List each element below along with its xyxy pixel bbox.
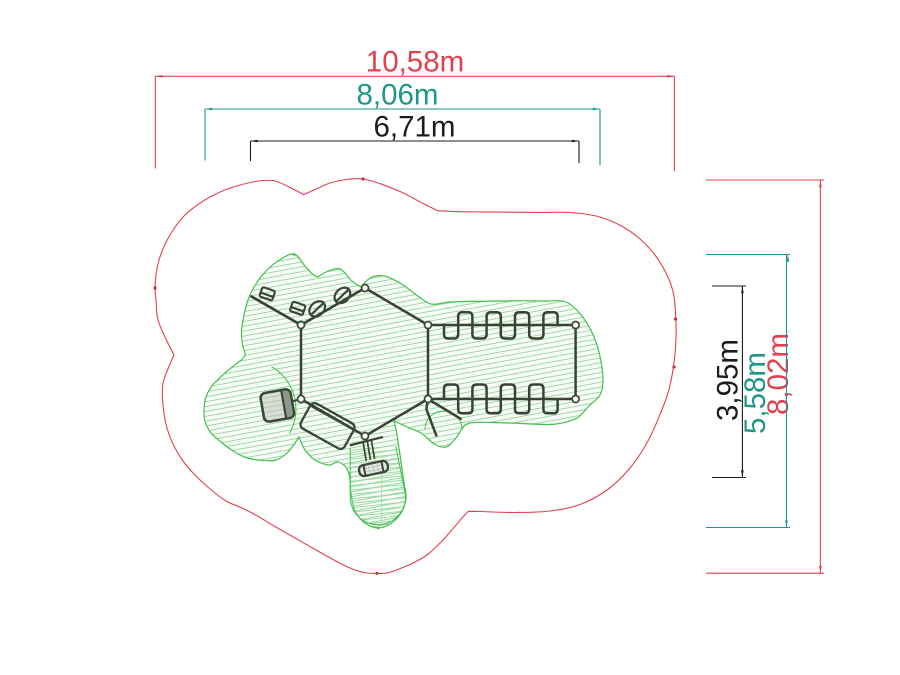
svg-text:8,06m: 8,06m bbox=[357, 79, 439, 112]
svg-text:3,95m: 3,95m bbox=[712, 339, 745, 421]
svg-text:6,71m: 6,71m bbox=[374, 111, 456, 144]
svg-text:10,58m: 10,58m bbox=[366, 46, 464, 79]
